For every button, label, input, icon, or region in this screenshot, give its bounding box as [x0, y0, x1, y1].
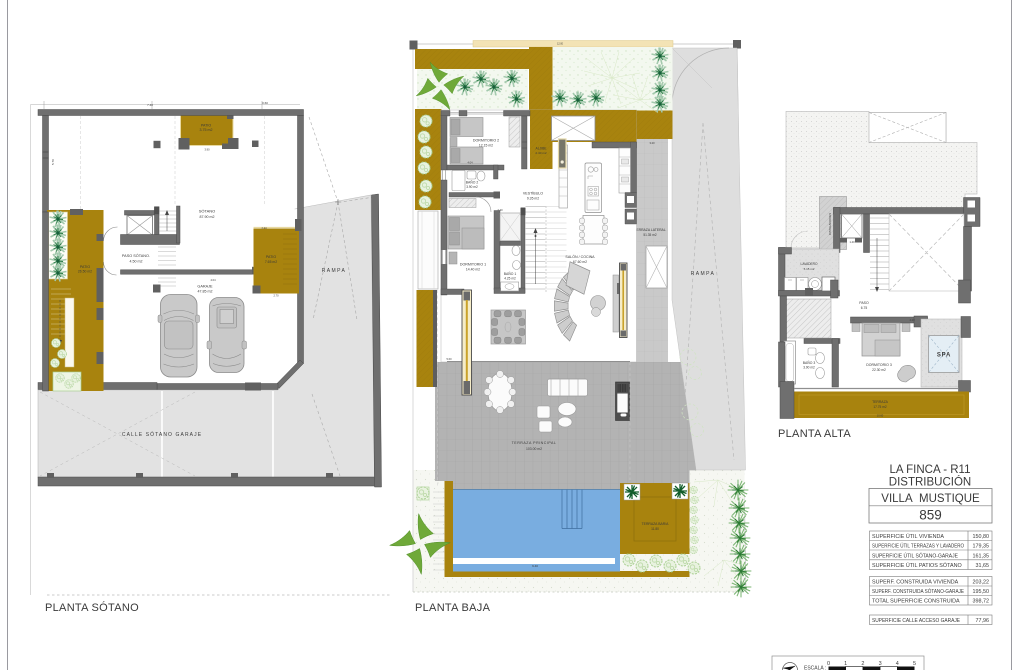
svg-text:7.40: 7.40: [147, 103, 153, 107]
svg-text:PLANTA SÓTANO: PLANTA SÓTANO: [45, 601, 139, 614]
svg-text:DORMITORIO 3: DORMITORIO 3: [866, 363, 892, 367]
svg-text:12.15 m2: 12.15 m2: [479, 144, 493, 148]
svg-text:3.90 m2: 3.90 m2: [466, 185, 478, 189]
svg-text:SUPERFICIE ÚTIL TERRAZAS Y LAV: SUPERFICIE ÚTIL TERRAZAS Y LAVADERO: [872, 543, 964, 550]
svg-text:31,65: 31,65: [976, 563, 990, 569]
svg-text:0.60: 0.60: [262, 101, 268, 105]
svg-text:10.60: 10.60: [877, 414, 884, 418]
svg-text:11.80: 11.80: [651, 527, 659, 531]
svg-text:DISTRIBUCIÓN: DISTRIBUCIÓN: [889, 476, 971, 489]
svg-text:LA FINCA - R11: LA FINCA - R11: [890, 464, 971, 476]
svg-text:17.75 m2: 17.75 m2: [873, 405, 887, 409]
svg-text:3.75 m2: 3.75 m2: [200, 128, 213, 132]
svg-text:PLANTA BAJA: PLANTA BAJA: [415, 602, 491, 614]
svg-text:5.15 m2: 5.15 m2: [804, 267, 815, 271]
svg-text:SUPERF. CONSTRUIDA SÓTANO-GARA: SUPERF. CONSTRUIDA SÓTANO-GARAJE: [872, 588, 964, 595]
svg-text:GARAJE: GARAJE: [197, 285, 213, 289]
svg-text:BAÑO 2: BAÑO 2: [466, 180, 479, 185]
svg-text:DORMITORIO 2: DORMITORIO 2: [473, 139, 499, 143]
svg-text:SALÓN / COCINA: SALÓN / COCINA: [565, 254, 595, 259]
svg-text:VESTÍBULO: VESTÍBULO: [523, 192, 543, 196]
svg-text:INSTALACIONES: INSTALACIONES: [828, 213, 832, 235]
svg-text:77,96: 77,96: [976, 618, 990, 624]
svg-text:LAVADERO: LAVADERO: [801, 262, 818, 266]
svg-text:22.30 m2: 22.30 m2: [872, 368, 886, 372]
svg-text:51.35 m2: 51.35 m2: [643, 233, 657, 237]
svg-text:398,72: 398,72: [973, 599, 990, 605]
svg-text:0: 0: [827, 661, 830, 667]
svg-text:1: 1: [844, 661, 847, 667]
svg-text:859: 859: [919, 508, 942, 523]
svg-text:67.60 m2: 67.60 m2: [573, 260, 587, 264]
svg-text:3: 3: [879, 661, 882, 667]
svg-text:14.40 m2: 14.40 m2: [466, 268, 480, 272]
svg-text:5.60: 5.60: [446, 357, 452, 361]
svg-text:PATIO: PATIO: [80, 265, 90, 269]
svg-text:2: 2: [861, 661, 864, 667]
svg-text:195,50: 195,50: [973, 589, 990, 595]
svg-text:3.90 m2: 3.90 m2: [803, 366, 815, 370]
svg-text:PATIO: PATIO: [266, 255, 276, 259]
svg-text:TERRAZA: TERRAZA: [872, 400, 889, 404]
svg-text:TOTAL SUPERFICIE CONSTRUIDA: TOTAL SUPERFICIE CONSTRUIDA: [872, 599, 960, 605]
svg-text:5: 5: [913, 661, 916, 667]
svg-text:RAMPA: RAMPA: [691, 271, 715, 277]
svg-text:3.20: 3.20: [649, 141, 655, 145]
svg-text:6.75: 6.75: [861, 306, 868, 310]
svg-text:TERRAZA LATERAL: TERRAZA LATERAL: [634, 228, 666, 232]
svg-text:PLANTA ALTA: PLANTA ALTA: [778, 428, 851, 440]
svg-text:4.25 m2: 4.25 m2: [504, 277, 516, 281]
svg-text:PATIO: PATIO: [201, 124, 211, 128]
svg-text:7.65 m2: 7.65 m2: [265, 260, 277, 264]
svg-text:TERRAZA PRINCIPAL: TERRAZA PRINCIPAL: [512, 441, 557, 445]
svg-text:5.70: 5.70: [51, 159, 55, 165]
svg-text:4: 4: [896, 661, 899, 667]
svg-text:4.23: 4.23: [909, 318, 915, 322]
svg-text:VILLA MUSTIQUE: VILLA MUSTIQUE: [881, 493, 980, 505]
svg-text:2.70: 2.70: [273, 294, 279, 298]
svg-text:PASO: PASO: [859, 301, 869, 305]
svg-text:DORMITORIO 1: DORMITORIO 1: [460, 263, 486, 267]
svg-text:3.90: 3.90: [204, 148, 210, 152]
svg-text:2.40: 2.40: [497, 208, 503, 212]
svg-text:TERRAZA BAR/A: TERRAZA BAR/A: [642, 522, 669, 526]
svg-text:BAÑO 3: BAÑO 3: [803, 360, 816, 365]
svg-text:4.04: 4.04: [467, 161, 473, 165]
svg-text:26.50 m2: 26.50 m2: [78, 270, 92, 274]
svg-text:SUPERF. CONSTRUIDA VIVIENDA: SUPERF. CONSTRUIDA VIVIENDA: [872, 580, 959, 586]
svg-text:203,22: 203,22: [973, 580, 990, 586]
svg-text:4.50 m2: 4.50 m2: [130, 260, 143, 264]
svg-text:SÓTANO: SÓTANO: [199, 209, 216, 214]
svg-text:BAÑO 1: BAÑO 1: [504, 271, 517, 276]
svg-text:SUPERFICIE CALLE ACCESO GARAJE: SUPERFICIE CALLE ACCESO GARAJE: [872, 618, 960, 624]
svg-text:47.85 m2: 47.85 m2: [198, 290, 213, 294]
svg-text:9.40: 9.40: [532, 564, 538, 568]
svg-text:SPA: SPA: [937, 353, 951, 359]
svg-text:SUPERFICIE ÚTIL VIVIENDA: SUPERFICIE ÚTIL VIVIENDA: [872, 533, 944, 540]
svg-text:SUPERFICIE ÚTIL SÓTANO-GARAJE: SUPERFICIE ÚTIL SÓTANO-GARAJE: [872, 552, 958, 559]
svg-text:PASO SÓTANO.: PASO SÓTANO.: [122, 253, 150, 258]
svg-text:ALJIBE: ALJIBE: [536, 147, 548, 151]
svg-text:RAMPA: RAMPA: [322, 268, 346, 274]
svg-text:103.00 m2: 103.00 m2: [526, 447, 542, 451]
svg-text:161,35: 161,35: [973, 553, 990, 559]
svg-text:2.40 m2: 2.40 m2: [535, 151, 546, 155]
svg-text:150,80: 150,80: [973, 534, 990, 540]
svg-text:179,35: 179,35: [973, 544, 990, 550]
svg-text:SUPERFICIE ÚTIL PATIOS SÓTANO: SUPERFICIE ÚTIL PATIOS SÓTANO: [872, 562, 962, 569]
svg-text:87.90 m2: 87.90 m2: [200, 215, 215, 219]
svg-text:12.00: 12.00: [557, 43, 564, 46]
svg-text:2.44: 2.44: [261, 226, 267, 230]
svg-text:4.04: 4.04: [210, 278, 216, 282]
svg-text:9.35 m2: 9.35 m2: [527, 197, 539, 201]
svg-text:1.40: 1.40: [849, 240, 855, 244]
svg-text:CALLE SÓTANO GARAJE: CALLE SÓTANO GARAJE: [122, 431, 202, 438]
svg-text:ESCALA :: ESCALA :: [804, 666, 826, 670]
